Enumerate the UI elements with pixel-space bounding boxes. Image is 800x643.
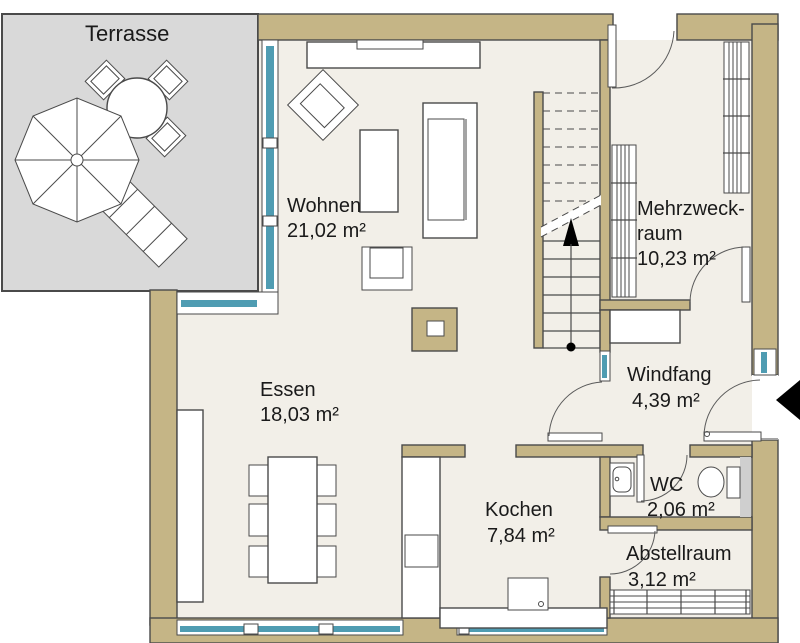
wall-windfang-bottom-right — [690, 445, 752, 457]
label-kochen: Kochen — [485, 499, 553, 521]
dining-chair — [249, 465, 268, 496]
counter-bottom — [440, 608, 607, 628]
wc-toilet-tank — [727, 467, 740, 498]
stair-start-dot — [567, 343, 576, 352]
shelf-right — [723, 42, 750, 193]
wall-top-left — [258, 14, 613, 40]
wall-right-upper — [752, 24, 778, 375]
opening-front-door — [752, 375, 778, 440]
parasol — [15, 98, 139, 222]
wall-windfang-left-upper — [600, 310, 610, 352]
floor-plan-canvas: Terrasse Wohnen 21,02 m² Essen 18,03 m² … — [0, 0, 800, 643]
label-mehrzweckraum-2: raum — [637, 223, 683, 245]
dining-chair — [249, 546, 268, 577]
kitchen-appliance — [405, 535, 438, 567]
window-mullion — [319, 624, 333, 634]
wall-mehrzweckraum-bottom — [600, 300, 690, 310]
window-mullion — [244, 624, 258, 634]
essen-sideboard — [177, 410, 203, 602]
window-mullion — [263, 216, 277, 226]
wc-installation-wall — [740, 457, 751, 517]
label-kochen-area: 7,84 m² — [487, 525, 555, 547]
dining-chair — [249, 504, 268, 536]
shelf-left — [611, 145, 637, 297]
wc-toilet-bowl — [698, 467, 724, 497]
entrance-arrow-icon — [776, 380, 800, 420]
label-abstellraum: Abstellraum — [626, 543, 732, 565]
label-essen-area: 18,03 m² — [260, 404, 339, 426]
tv — [357, 40, 423, 49]
wall-left — [150, 290, 177, 625]
abstellraum-shelf — [610, 590, 750, 614]
label-terrasse: Terrasse — [85, 21, 169, 46]
label-abstellraum-area: 3,12 m² — [628, 569, 696, 591]
label-windfang-area: 4,39 m² — [632, 390, 700, 412]
dining-chair — [317, 465, 336, 496]
label-mehrzweckraum-area: 10,23 m² — [637, 248, 716, 270]
windfang-wardrobe — [610, 310, 680, 343]
window-mullion — [263, 138, 277, 148]
label-wohnen: Wohnen — [287, 195, 361, 217]
wall-kitchen-top-left — [402, 445, 465, 457]
label-wc-area: 2,06 m² — [647, 499, 715, 521]
label-wohnen-area: 21,02 m² — [287, 220, 366, 242]
opening-mehrzweckraum-ext-door — [614, 14, 676, 40]
wall-right-lower — [752, 440, 778, 643]
terrace — [2, 14, 258, 291]
kitchen-stove — [508, 578, 548, 610]
dining-table — [268, 457, 317, 583]
wall-wc-left — [600, 457, 610, 517]
dining-chair — [317, 546, 336, 577]
coffee-table — [360, 130, 398, 212]
wall-stair-left — [534, 92, 543, 348]
dining-chair — [317, 504, 336, 536]
floor-plan: Terrasse Wohnen 21,02 m² Essen 18,03 m² … — [0, 0, 800, 643]
label-windfang: Windfang — [627, 364, 712, 386]
wall-kitchen-top-right — [516, 445, 643, 457]
label-wc: WC — [650, 474, 683, 496]
label-mehrzweckraum-1: Mehrzweck- — [637, 198, 745, 220]
label-essen: Essen — [260, 379, 316, 401]
